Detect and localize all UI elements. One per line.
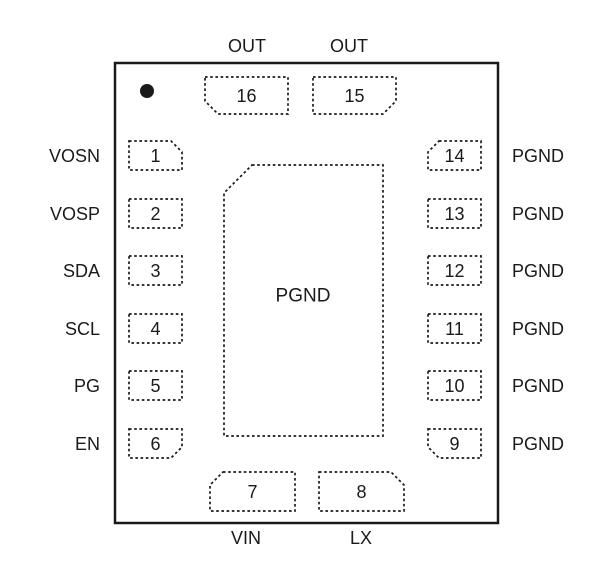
pin-label-pgnd-13: PGND <box>512 205 564 223</box>
pin-label-vosn: VOSN <box>0 147 100 165</box>
pin-label-out-16: OUT <box>228 37 266 55</box>
pin-label-lx: LX <box>350 529 372 547</box>
pinout-diagram: 16 15 1 2 3 4 5 6 14 13 12 11 10 9 7 8 O… <box>0 0 615 582</box>
pin-number-15: 15 <box>344 87 364 105</box>
pin-number-5: 5 <box>150 377 160 395</box>
pin-number-14: 14 <box>444 147 464 165</box>
pin-label-pgnd-10: PGND <box>512 377 564 395</box>
pin-label-pgnd-11: PGND <box>512 320 564 338</box>
center-pad-label: PGND <box>276 287 331 306</box>
pin-number-13: 13 <box>444 205 464 223</box>
pin-label-pgnd-14: PGND <box>512 147 564 165</box>
pin-label-pg: PG <box>0 377 100 395</box>
pin-number-6: 6 <box>150 435 160 453</box>
pin-number-12: 12 <box>444 262 464 280</box>
pin1-indicator-dot <box>140 84 154 98</box>
pin-label-vin: VIN <box>231 529 261 547</box>
pin-number-10: 10 <box>444 377 464 395</box>
pin-label-out-15: OUT <box>330 37 368 55</box>
pin-number-7: 7 <box>247 483 257 501</box>
pin-number-2: 2 <box>150 205 160 223</box>
pin-number-11: 11 <box>445 320 464 338</box>
pin-label-pgnd-12: PGND <box>512 262 564 280</box>
pin-number-8: 8 <box>356 483 366 501</box>
pin-number-4: 4 <box>150 320 160 338</box>
pin-label-pgnd-9: PGND <box>512 435 564 453</box>
pin-label-en: EN <box>0 435 100 453</box>
pin-number-3: 3 <box>150 262 160 280</box>
pin-number-1: 1 <box>150 147 160 165</box>
pin-number-9: 9 <box>449 435 459 453</box>
pin-label-sda: SDA <box>0 262 100 280</box>
pin-label-vosp: VOSP <box>0 205 100 223</box>
pin-number-16: 16 <box>236 87 256 105</box>
pin-label-scl: SCL <box>0 320 100 338</box>
